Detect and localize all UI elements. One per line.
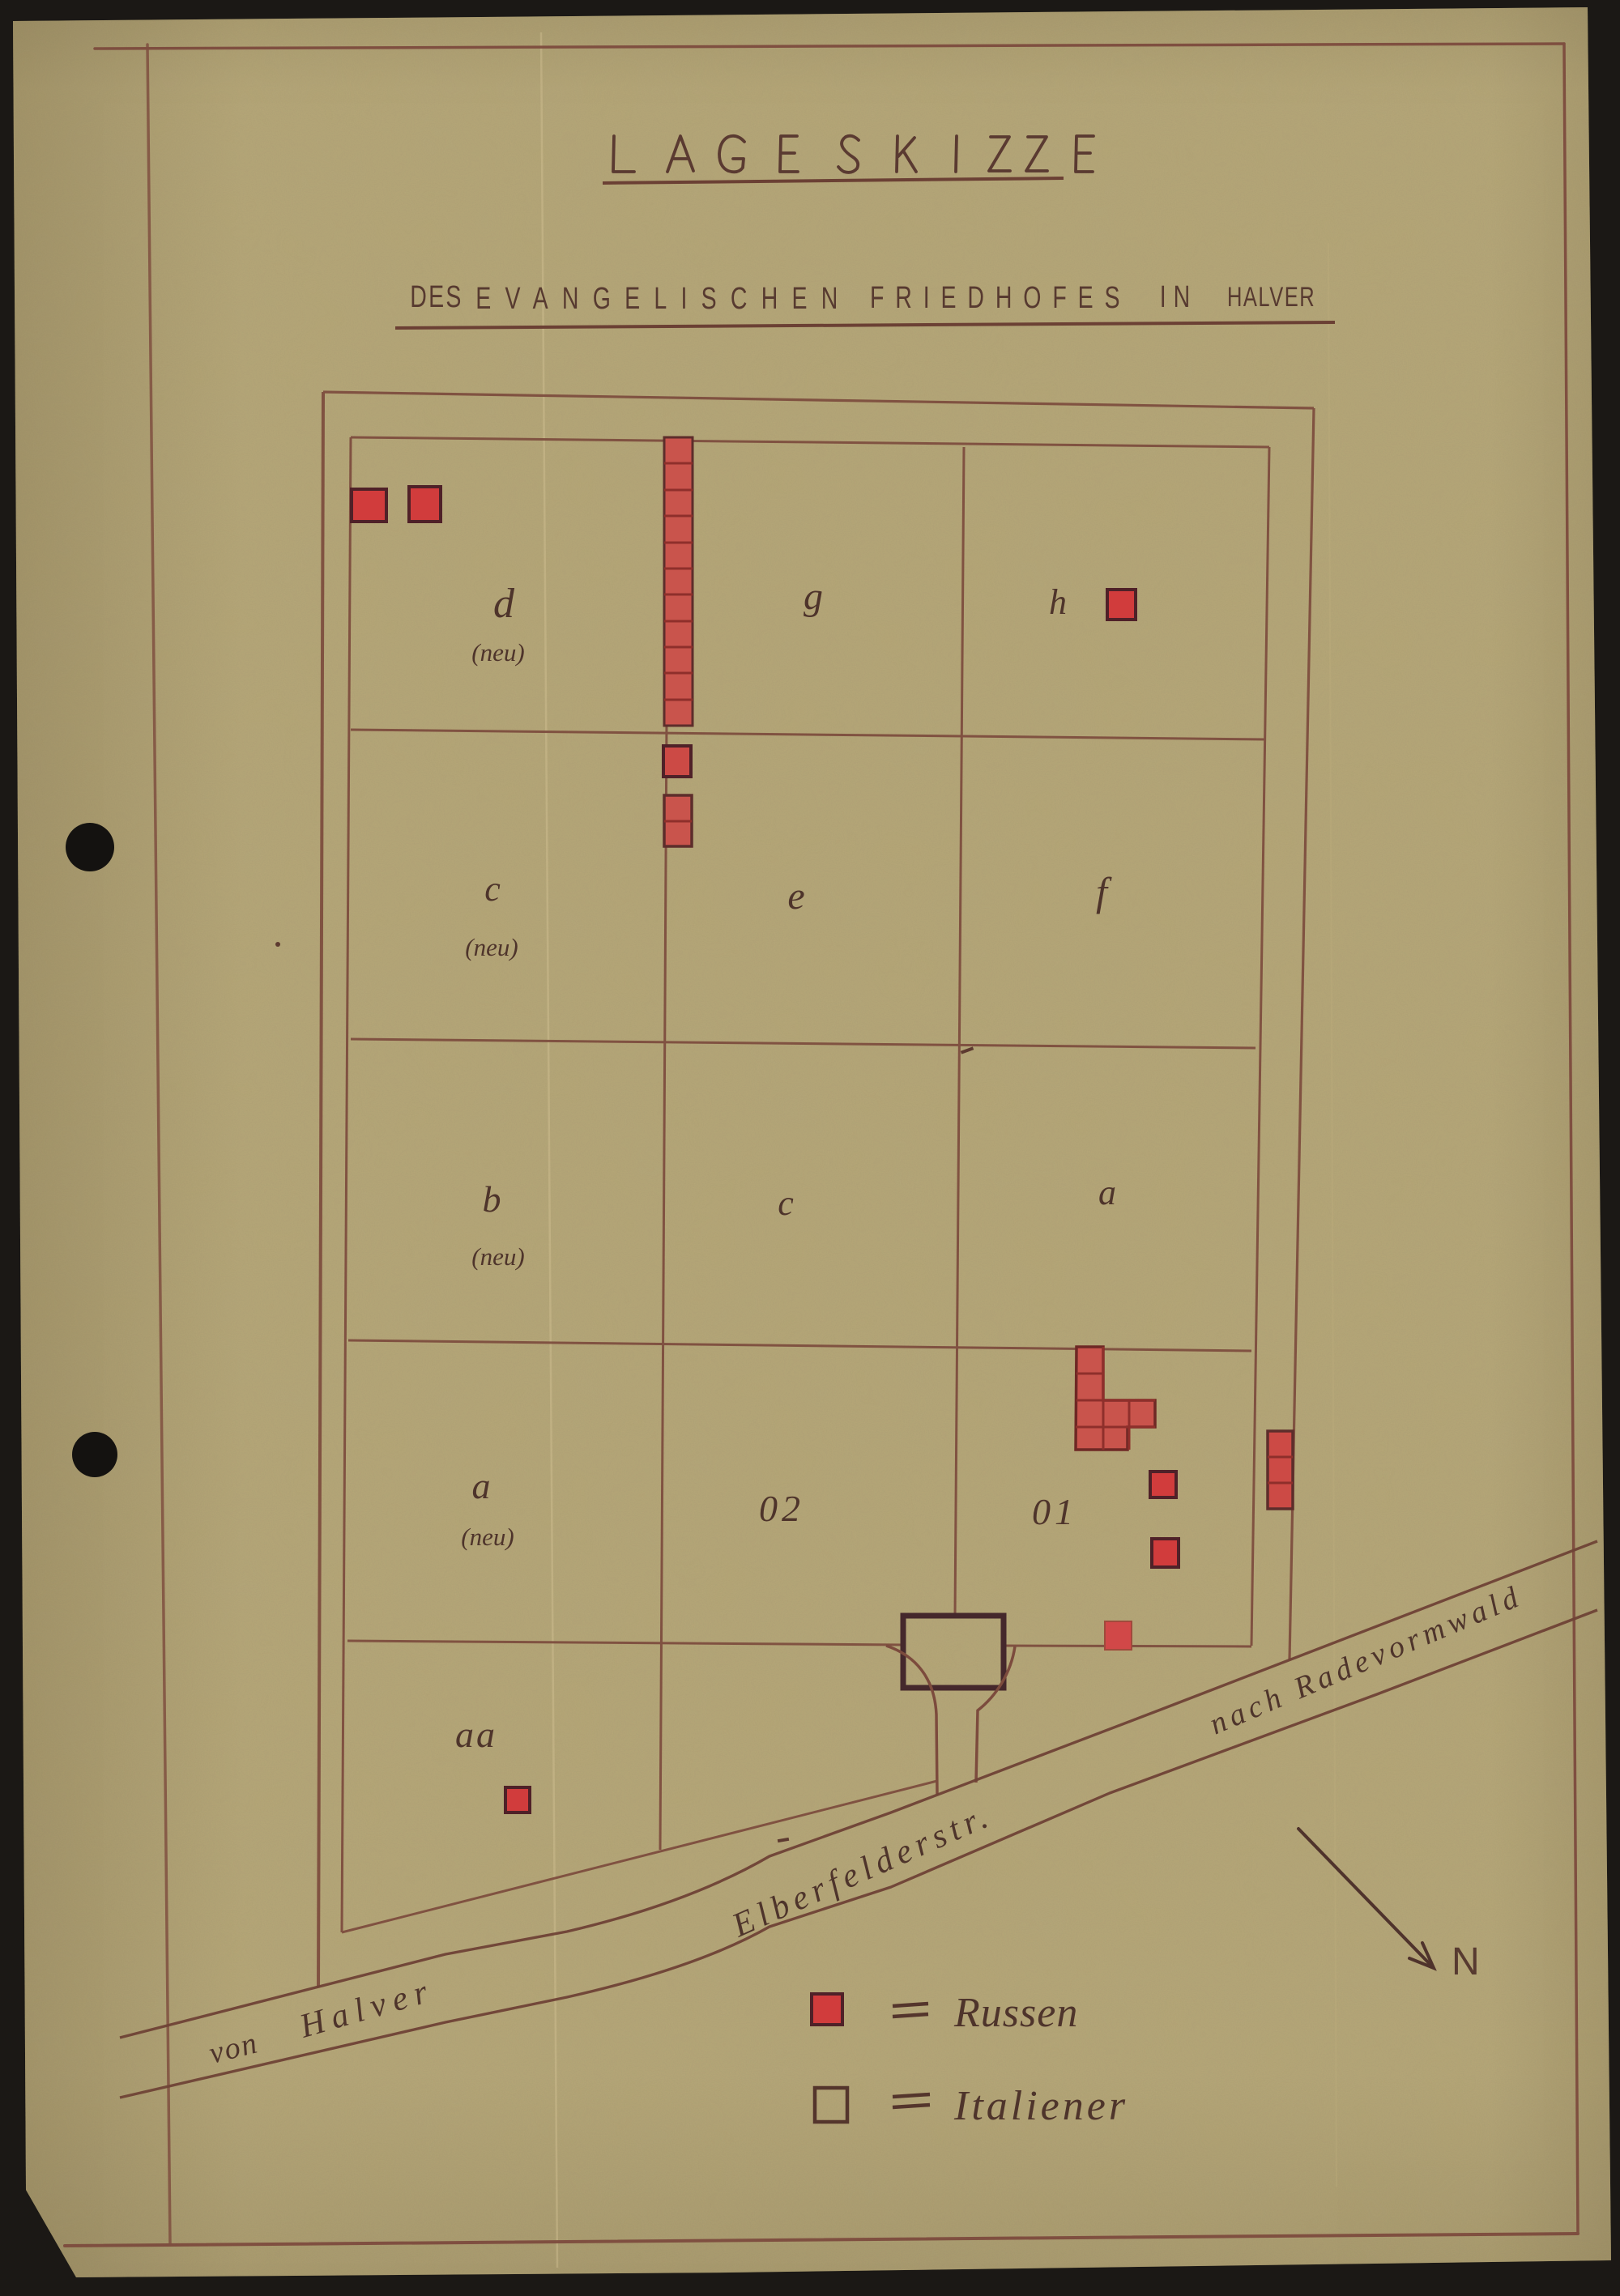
svg-text:e: e — [787, 875, 804, 918]
svg-text:c: c — [778, 1183, 794, 1223]
svg-text:Italiener: Italiener — [953, 2083, 1128, 2129]
svg-text:EVANGELISCHEN: EVANGELISCHEN — [475, 282, 851, 316]
svg-text:d: d — [493, 581, 515, 627]
svg-text:Russen: Russen — [953, 1990, 1078, 2036]
svg-text:N: N — [1452, 1940, 1480, 1983]
svg-text:h: h — [1049, 582, 1067, 622]
svg-text:a: a — [1098, 1173, 1116, 1212]
svg-text:(neu): (neu) — [471, 1242, 524, 1271]
svg-text:DES: DES — [410, 280, 463, 314]
svg-text:a: a — [472, 1465, 491, 1506]
svg-text:(neu): (neu) — [465, 933, 518, 961]
svg-text:IN: IN — [1160, 280, 1197, 314]
svg-text:(neu): (neu) — [471, 638, 524, 667]
svg-text:c: c — [484, 869, 501, 909]
svg-text:01: 01 — [1032, 1491, 1077, 1532]
svg-text:aa: aa — [455, 1714, 497, 1755]
svg-text:HALVER: HALVER — [1227, 283, 1315, 313]
svg-text:FRIEDHOFES: FRIEDHOFES — [870, 281, 1131, 315]
svg-text:b: b — [483, 1178, 501, 1220]
svg-text:(neu): (neu) — [461, 1523, 514, 1551]
svg-text:g: g — [804, 575, 823, 618]
svg-text:02: 02 — [759, 1488, 804, 1529]
